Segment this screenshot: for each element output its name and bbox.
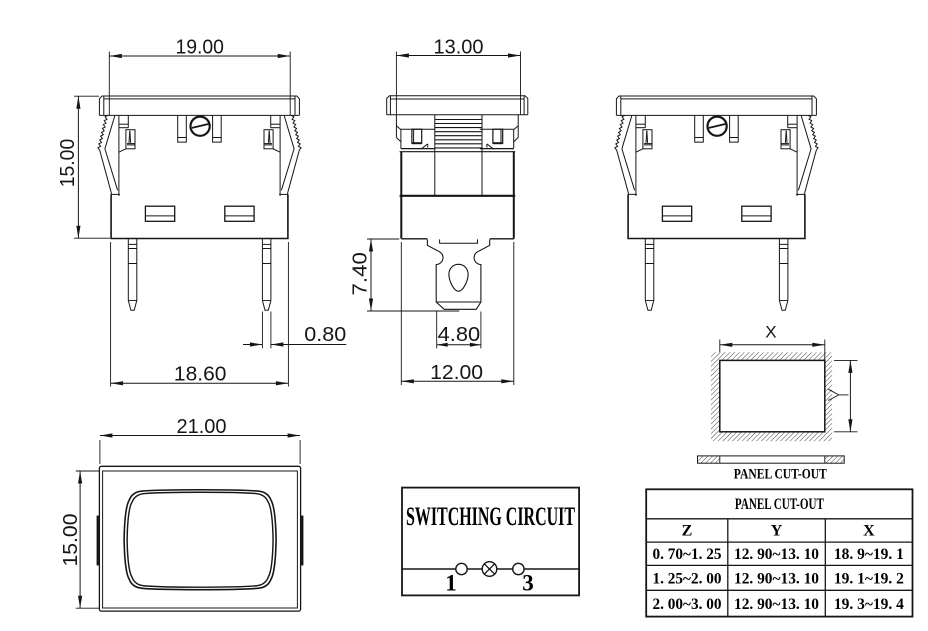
svg-text:Y: Y [771, 523, 783, 540]
svg-text:13.00: 13.00 [434, 35, 484, 58]
svg-text:1: 1 [445, 571, 457, 596]
svg-text:15.00: 15.00 [56, 139, 79, 188]
svg-text:X: X [765, 323, 776, 342]
svg-text:1. 25~2. 00: 1. 25~2. 00 [653, 571, 722, 588]
svg-text:19. 1~19. 2: 19. 1~19. 2 [834, 571, 904, 588]
svg-text:0.80: 0.80 [304, 323, 346, 346]
svg-text:19. 3~19. 4: 19. 3~19. 4 [834, 596, 904, 613]
svg-text:Z: Z [682, 523, 693, 540]
svg-text:12.00: 12.00 [430, 361, 483, 384]
svg-text:X: X [863, 523, 875, 540]
svg-text:19.00: 19.00 [175, 36, 224, 59]
svg-text:12. 90~13. 10: 12. 90~13. 10 [734, 546, 819, 563]
svg-text:21.00: 21.00 [177, 415, 227, 438]
svg-text:12. 90~13. 10: 12. 90~13. 10 [734, 571, 819, 588]
svg-text:SWITCHING CIRCUIT: SWITCHING CIRCUIT [406, 502, 575, 531]
svg-text:0. 70~1. 25: 0. 70~1. 25 [653, 546, 722, 563]
svg-text:18.60: 18.60 [174, 363, 227, 386]
svg-text:12. 90~13. 10: 12. 90~13. 10 [734, 596, 819, 613]
svg-text:3: 3 [522, 571, 534, 596]
svg-text:2. 00~3. 00: 2. 00~3. 00 [653, 596, 722, 613]
svg-text:PANEL CUT-OUT: PANEL CUT-OUT [734, 467, 827, 483]
svg-text:7.40: 7.40 [349, 252, 372, 296]
svg-text:PANEL CUT-OUT: PANEL CUT-OUT [735, 496, 824, 513]
svg-text:15.00: 15.00 [59, 514, 82, 567]
svg-text:18. 9~19. 1: 18. 9~19. 1 [834, 546, 904, 563]
svg-text:4.80: 4.80 [438, 323, 481, 346]
